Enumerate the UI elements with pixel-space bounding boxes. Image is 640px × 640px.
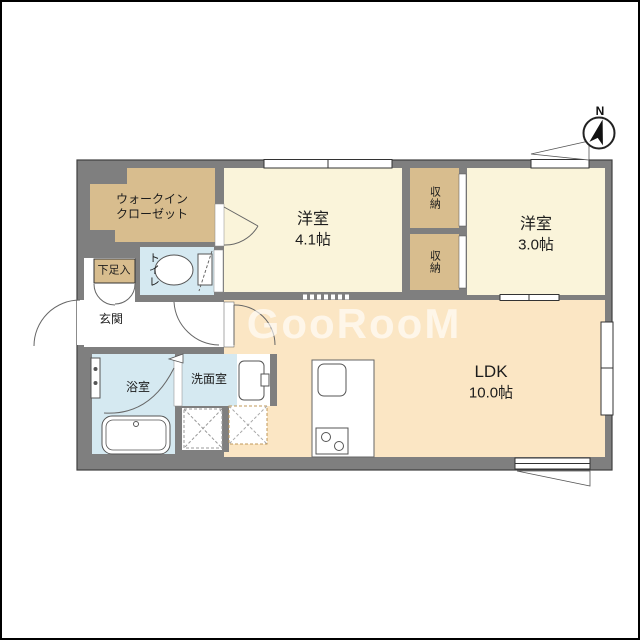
walk-in-closet-label-line2: クローゼット xyxy=(116,208,188,222)
refrigerator-space xyxy=(229,406,267,444)
storage-bottom-door-gap xyxy=(459,236,466,288)
washbasin xyxy=(239,361,269,400)
ldk-floor xyxy=(224,300,605,457)
toilet-label: トイレ xyxy=(147,252,160,288)
bathroom-label: 浴室 xyxy=(126,381,150,395)
bedroom2-label: 洋室 xyxy=(520,216,552,234)
compass xyxy=(584,118,615,149)
storage-top-door-gap xyxy=(459,174,466,226)
bathroom-door-gap xyxy=(174,360,182,406)
entrance-door-swing xyxy=(34,300,80,346)
bedroom1-floor xyxy=(224,168,402,292)
ldk-label: LDK xyxy=(474,362,507,382)
shoe-cabinet-label: 下足入 xyxy=(98,265,131,278)
washing-machine-space xyxy=(184,409,222,448)
storage-top-label: 収納 xyxy=(428,186,441,210)
bedroom2-top-window xyxy=(531,160,589,169)
kitchen-counter xyxy=(312,360,374,457)
bottom-casement xyxy=(517,471,590,486)
entrance-door-gap xyxy=(77,300,85,345)
ldk-doorway-gap xyxy=(224,302,234,347)
bedroom1-door-gap xyxy=(215,204,224,246)
kitchen-stove xyxy=(316,428,348,454)
walk-in-closet-label-line1: ウォークイン xyxy=(116,193,188,207)
kitchen-sink xyxy=(318,364,346,396)
toilet-fixture xyxy=(155,254,212,285)
wall-patch xyxy=(222,406,229,452)
bathtub xyxy=(102,416,170,454)
storage-bottom-label: 収納 xyxy=(428,250,441,274)
floorplan-drawing xyxy=(2,2,640,640)
toilet-door-gap xyxy=(214,250,223,292)
north-label: N xyxy=(596,104,605,118)
top-casement xyxy=(531,141,589,160)
ldk-size: 10.0帖 xyxy=(469,384,513,401)
bedroom1-size: 4.1帖 xyxy=(295,231,331,248)
washroom-label: 洗面室 xyxy=(191,373,227,387)
bedroom1-label: 洋室 xyxy=(297,211,329,229)
entrance-label: 玄関 xyxy=(99,313,123,327)
bath-faucet-unit xyxy=(91,358,100,398)
floorplan-canvas: ウォークイン クローゼット 洋室 4.1帖 収納 収納 洋室 3.0帖 下足入 … xyxy=(0,0,640,640)
bedroom2-size: 3.0帖 xyxy=(518,236,554,253)
